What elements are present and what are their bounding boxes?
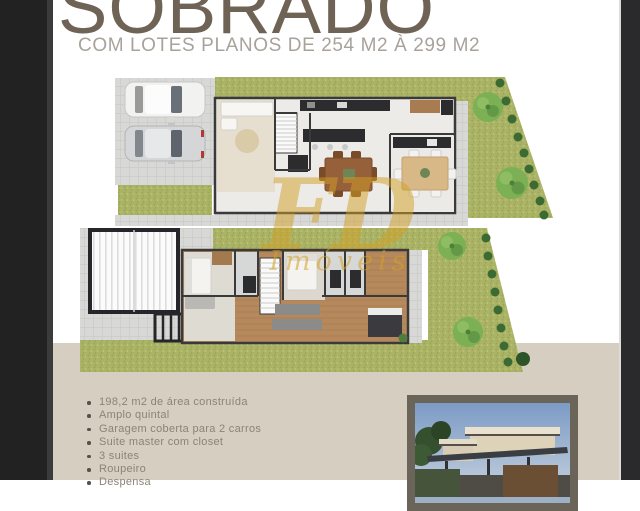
wardrobe <box>272 319 322 330</box>
closet <box>212 252 232 265</box>
dark-tree-icon <box>516 352 530 366</box>
tree-icon <box>473 92 503 122</box>
feature-item: Garagem coberta para 2 carros <box>86 423 261 436</box>
house-photo <box>407 395 578 511</box>
round-rug <box>235 129 259 153</box>
subtitle: COM LOTES PLANOS DE 254 M2 À 299 M2 <box>78 35 480 57</box>
lawn-patch <box>118 185 212 215</box>
bed-dark <box>368 308 402 337</box>
tree-icon <box>438 232 466 260</box>
feature-item: Despensa <box>86 476 261 489</box>
feature-item: 3 suites <box>86 450 261 463</box>
ground-floor-plan <box>75 77 555 227</box>
car-white-icon <box>125 79 205 120</box>
cabinets <box>410 100 440 113</box>
house-render <box>415 403 570 497</box>
tree-icon <box>453 317 483 347</box>
dining-table <box>394 150 456 197</box>
feature-item: 198,2 m2 de área construída <box>86 396 261 409</box>
feature-item: Roupeiro <box>86 463 261 476</box>
sofa <box>221 102 273 116</box>
tree-icon <box>496 167 528 199</box>
bench <box>185 296 215 309</box>
ground-floor-plan-drawing <box>75 77 555 227</box>
wardrobe <box>275 304 320 315</box>
house-upper-floor <box>182 250 408 343</box>
plant-icon <box>399 334 408 343</box>
house-ground-floor <box>215 98 456 213</box>
upper-floor-plan-drawing <box>75 228 555 372</box>
car-silver-icon <box>125 123 205 164</box>
left-bar-edge <box>47 0 53 480</box>
kitchen-island <box>303 129 365 142</box>
fridge <box>441 100 453 115</box>
feature-list: 198,2 m2 de área construída Amplo quinta… <box>86 396 261 490</box>
left-black-bar <box>0 0 47 480</box>
walkway <box>215 213 468 226</box>
buffet-counter <box>393 137 451 148</box>
upper-floor-plan <box>75 228 555 372</box>
feature-item: Suite master com closet <box>86 436 261 449</box>
garage-roof <box>90 230 178 312</box>
feature-item: Amplo quintal <box>86 409 261 422</box>
wood-dining-table <box>319 151 377 197</box>
right-black-bar <box>621 0 640 480</box>
